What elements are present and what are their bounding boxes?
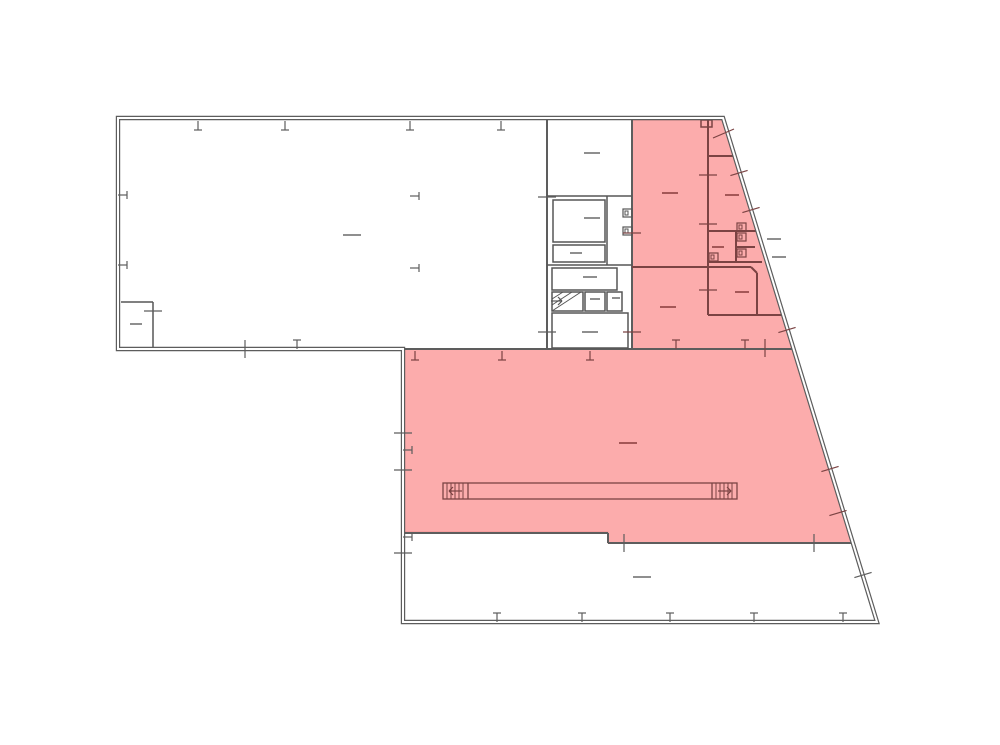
room-partition [552, 268, 617, 290]
highlight-lower-hall [404, 349, 853, 543]
room-partition [607, 292, 622, 311]
floor-plan [0, 0, 1000, 745]
floor-plan-svg [0, 0, 1000, 745]
room-partition [553, 200, 605, 242]
room-partition [552, 313, 628, 348]
room-partition [585, 292, 605, 311]
stair-symbol [551, 292, 581, 311]
